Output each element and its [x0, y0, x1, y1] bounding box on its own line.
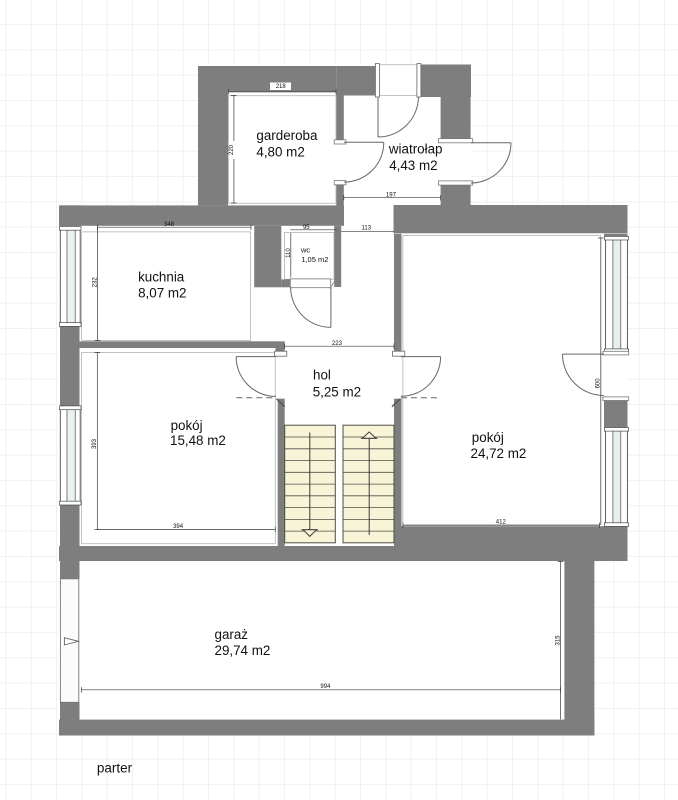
- svg-text:15,48 m2: 15,48 m2: [170, 433, 226, 448]
- svg-text:348: 348: [164, 222, 175, 228]
- svg-text:kuchnia: kuchnia: [138, 269, 185, 284]
- svg-text:pokój: pokój: [472, 430, 504, 445]
- svg-text:220: 220: [229, 144, 235, 155]
- svg-text:4,80 m2: 4,80 m2: [256, 145, 304, 160]
- svg-text:994: 994: [320, 684, 331, 690]
- svg-text:garaż: garaż: [215, 627, 249, 642]
- svg-text:hol: hol: [313, 368, 331, 383]
- svg-text:232: 232: [92, 277, 98, 288]
- svg-text:4,43 m2: 4,43 m2: [389, 158, 437, 173]
- svg-text:24,72 m2: 24,72 m2: [471, 446, 527, 461]
- svg-text:garderoba: garderoba: [256, 128, 318, 143]
- svg-text:197: 197: [386, 192, 397, 198]
- svg-text:223: 223: [332, 341, 343, 347]
- svg-text:412: 412: [496, 519, 507, 525]
- svg-text:393: 393: [92, 438, 98, 449]
- svg-text:95: 95: [303, 225, 310, 231]
- svg-text:wc: wc: [300, 246, 310, 255]
- svg-text:pokój: pokój: [171, 418, 203, 433]
- svg-text:600: 600: [596, 378, 602, 389]
- svg-text:1,05 m2: 1,05 m2: [301, 255, 328, 264]
- svg-text:8,07 m2: 8,07 m2: [138, 286, 186, 301]
- svg-text:5,25 m2: 5,25 m2: [313, 384, 361, 399]
- svg-text:110: 110: [286, 248, 292, 258]
- svg-text:218: 218: [276, 84, 287, 90]
- svg-text:wiatrołap: wiatrołap: [388, 142, 443, 157]
- svg-text:113: 113: [362, 226, 372, 232]
- svg-text:parter: parter: [97, 760, 133, 775]
- svg-text:29,74 m2: 29,74 m2: [215, 643, 271, 658]
- svg-text:394: 394: [173, 524, 184, 530]
- svg-text:315: 315: [556, 635, 562, 646]
